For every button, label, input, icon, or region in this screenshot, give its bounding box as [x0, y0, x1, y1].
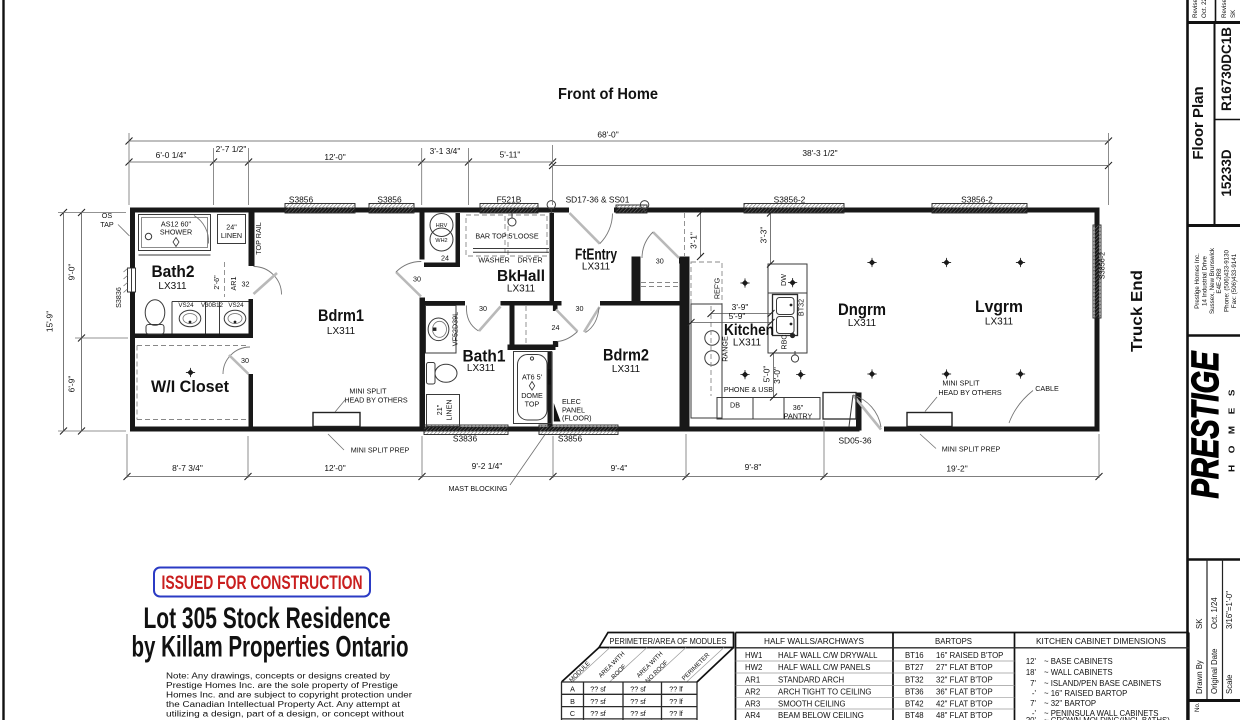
svg-text:DRYER: DRYER [517, 256, 542, 265]
svg-text:AT6 5': AT6 5' [522, 373, 543, 382]
svg-text:12': 12' [1026, 657, 1037, 666]
svg-text:AR2: AR2 [745, 688, 760, 697]
svg-text:32" FLAT B'TOP: 32" FLAT B'TOP [936, 675, 993, 684]
svg-text:LX311: LX311 [158, 281, 187, 292]
svg-text:HW1: HW1 [745, 651, 762, 660]
svg-text:RBC: RBC [780, 334, 789, 349]
svg-text:BT32: BT32 [797, 299, 806, 316]
svg-text:VS24: VS24 [178, 302, 194, 309]
svg-text:PHONE & USB: PHONE & USB [724, 385, 773, 394]
svg-text:3'-0": 3'-0" [772, 367, 782, 384]
svg-text:F521B: F521B [497, 195, 522, 205]
svg-text:Truck End: Truck End [1129, 270, 1146, 352]
svg-text:KITCHEN CABINET DIMENSIONS: KITCHEN CABINET DIMENSIONS [1036, 637, 1166, 646]
svg-text:(FLOOR): (FLOOR) [562, 414, 592, 423]
svg-text:Oct. 22: Oct. 22 [1201, 0, 1208, 18]
svg-text:BAR TOP 5'LOOSE: BAR TOP 5'LOOSE [475, 232, 538, 241]
svg-text:LX311: LX311 [612, 364, 641, 375]
svg-text:~ WALL CABINETS: ~ WALL CABINETS [1044, 668, 1113, 677]
svg-text:B: B [570, 697, 575, 706]
svg-text:~ BASE CABINETS: ~ BASE CABINETS [1044, 657, 1113, 666]
svg-text:15'-9": 15'-9" [45, 311, 55, 332]
svg-text:S3836: S3836 [453, 434, 478, 444]
svg-text:5'-0": 5'-0" [762, 366, 772, 383]
svg-text:9'-2 1/4": 9'-2 1/4" [472, 461, 503, 471]
svg-text:R16730DC1B: R16730DC1B [1219, 27, 1234, 111]
svg-text:Revised: Revised [1221, 0, 1228, 18]
svg-text:W/I Closet: W/I Closet [151, 377, 229, 396]
svg-text:30: 30 [413, 275, 421, 284]
svg-text:2'-7 1/2": 2'-7 1/2" [216, 144, 247, 154]
svg-text:68'-0": 68'-0" [597, 130, 618, 140]
svg-text:SD05-36: SD05-36 [838, 436, 871, 446]
svg-text:Oct. 1/24: Oct. 1/24 [1210, 597, 1219, 629]
svg-text:Prestige Homes Inc. are the so: Prestige Homes Inc. are the sole propert… [166, 681, 398, 690]
svg-text:MAST BLOCKING: MAST BLOCKING [449, 484, 508, 493]
svg-text:14 Industrial Drive: 14 Industrial Drive [1202, 256, 1209, 306]
svg-text:A: A [570, 685, 575, 694]
svg-text:36" FLAT B'TOP: 36" FLAT B'TOP [936, 688, 993, 697]
svg-text:9'-4": 9'-4" [611, 463, 628, 473]
svg-text:the Canadian Intellectual Prop: the Canadian Intellectual Property Act. … [166, 700, 401, 709]
svg-text:9'-0": 9'-0" [67, 264, 77, 281]
svg-text:Kitchen: Kitchen [724, 322, 774, 339]
svg-text:HRV: HRV [436, 223, 448, 229]
svg-text:~ 32" BARTOP: ~ 32" BARTOP [1044, 699, 1096, 708]
svg-text:?? lf: ?? lf [669, 697, 683, 706]
svg-text:HALF WALLS/ARCHWAYS: HALF WALLS/ARCHWAYS [764, 637, 864, 646]
svg-text:15233D: 15233D [1219, 149, 1234, 197]
svg-text:VS24: VS24 [228, 302, 244, 309]
svg-text:HALF WALL C/W DRYWALL: HALF WALL C/W DRYWALL [778, 651, 878, 660]
svg-text:Lvgrm: Lvgrm [975, 297, 1023, 316]
svg-text:RANGE: RANGE [721, 336, 730, 362]
svg-text:LX311: LX311 [985, 317, 1014, 328]
svg-text:DB: DB [730, 401, 740, 410]
svg-text:ARCH TIGHT TO CEILING: ARCH TIGHT TO CEILING [778, 688, 871, 697]
svg-text:TOP: TOP [525, 400, 540, 409]
svg-text:6'-0 1/4": 6'-0 1/4" [156, 150, 187, 160]
svg-text:18': 18' [1026, 668, 1037, 677]
svg-text:?? sf: ?? sf [630, 697, 646, 706]
svg-text:Front of Home: Front of Home [558, 86, 658, 103]
svg-text:LINEN: LINEN [445, 399, 454, 420]
svg-text:S3856: S3856 [377, 195, 402, 205]
svg-text:~ 16" RAISED BARTOP: ~ 16" RAISED BARTOP [1044, 689, 1127, 698]
svg-text:BT16: BT16 [905, 651, 924, 660]
svg-text:AR4: AR4 [745, 711, 761, 720]
svg-text:by Killam Properties Ontario: by Killam Properties Ontario [132, 631, 409, 664]
svg-text:3/16"=1'-0": 3/16"=1'-0" [1225, 591, 1234, 629]
svg-text:9'-8": 9'-8" [745, 462, 762, 472]
svg-text:Fax: (506)433-9141: Fax: (506)433-9141 [1231, 253, 1238, 308]
svg-text:SMOOTH CEILING: SMOOTH CEILING [778, 699, 846, 708]
svg-text:Phone: (506)433-9130: Phone: (506)433-9130 [1224, 249, 1231, 311]
svg-text:BT42: BT42 [905, 699, 924, 708]
svg-text:5'-9": 5'-9" [729, 311, 746, 321]
svg-text:BT36: BT36 [905, 688, 924, 697]
svg-text:WH2: WH2 [435, 238, 447, 244]
svg-text:BEAM BELOW CEILING: BEAM BELOW CEILING [778, 711, 864, 720]
svg-text:?? sf: ?? sf [630, 709, 646, 718]
svg-text:S3856-2: S3856-2 [774, 195, 806, 205]
svg-text:LX311: LX311 [582, 262, 611, 273]
svg-text:BARTOPS: BARTOPS [935, 637, 972, 646]
svg-text:S3856: S3856 [558, 434, 583, 444]
svg-text:SD17-36 & SS01: SD17-36 & SS01 [566, 195, 630, 205]
svg-text:Note: Any drawings, concepts: Note: Any drawings, concepts or designs … [166, 672, 390, 681]
svg-text:LX311: LX311 [848, 318, 877, 329]
svg-text:E4E-2R8: E4E-2R8 [1216, 268, 1223, 294]
svg-text:19'-2": 19'-2" [946, 464, 967, 474]
svg-text:Scale: Scale [1225, 674, 1234, 694]
svg-text:?? sf: ?? sf [590, 685, 606, 694]
svg-text:38'-3 1/2": 38'-3 1/2" [802, 148, 837, 158]
svg-text:30: 30 [576, 304, 584, 313]
svg-text:LINEN: LINEN [221, 231, 242, 240]
svg-text:utilizing a design, part of a: utilizing a design, part of a design, or… [166, 710, 405, 719]
svg-text:CABLE: CABLE [1035, 384, 1059, 393]
svg-text:Bdrm2: Bdrm2 [603, 346, 649, 365]
svg-text:REF'G: REF'G [713, 277, 722, 299]
svg-text:LX311: LX311 [327, 326, 356, 337]
svg-text:Bath2: Bath2 [152, 262, 195, 281]
svg-text:16" RAISED B'TOP: 16" RAISED B'TOP [936, 651, 1003, 660]
svg-text:20': 20' [1026, 716, 1037, 720]
svg-text:S3856-2: S3856-2 [1098, 252, 1107, 279]
svg-text:HW2: HW2 [745, 663, 762, 672]
svg-text:21": 21" [435, 404, 444, 415]
svg-text:30: 30 [656, 257, 664, 266]
svg-text:-': -' [1032, 689, 1037, 698]
svg-text:WASHER: WASHER [478, 256, 509, 265]
svg-text:V30B12: V30B12 [201, 302, 224, 309]
svg-text:MINI SPLIT PREP: MINI SPLIT PREP [942, 445, 1001, 454]
svg-text:C: C [570, 709, 575, 718]
svg-text:24: 24 [552, 323, 560, 332]
svg-text:Original Date: Original Date [1210, 648, 1219, 694]
svg-text:SK: SK [1195, 618, 1204, 629]
svg-text:SK: SK [1230, 9, 1237, 18]
svg-text:Sussex, New Brunswick: Sussex, New Brunswick [1209, 247, 1216, 314]
svg-text:~ CROWN MOLDING(INCL BATHS): ~ CROWN MOLDING(INCL BATHS) [1044, 716, 1170, 720]
svg-text:30: 30 [241, 356, 249, 365]
svg-text:?? lf: ?? lf [669, 709, 683, 718]
svg-text:27" FLAT B'TOP: 27" FLAT B'TOP [936, 663, 993, 672]
svg-text:Floor Plan: Floor Plan [1190, 86, 1207, 159]
svg-text:ISSUED FOR CONSTRUCTION: ISSUED FOR CONSTRUCTION [162, 572, 363, 594]
svg-text:TAP: TAP [100, 220, 114, 229]
svg-text:2'-6": 2'-6" [212, 275, 221, 290]
svg-text:?? sf: ?? sf [590, 697, 606, 706]
svg-text:48" FLAT B'TOP: 48" FLAT B'TOP [936, 711, 993, 720]
svg-text:MINI SPLIT: MINI SPLIT [349, 387, 387, 396]
svg-text:HOMES: HOMES [1227, 378, 1237, 472]
svg-text:VF52D39L: VF52D39L [451, 312, 460, 346]
svg-text:BT27: BT27 [905, 663, 924, 672]
svg-text:HALF WALL C/W PANELS: HALF WALL C/W PANELS [778, 663, 870, 672]
svg-text:Revised: Revised [1192, 0, 1199, 18]
svg-text:?? sf: ?? sf [630, 685, 646, 694]
svg-text:BT32: BT32 [905, 675, 924, 684]
svg-text:MINI SPLIT PREP: MINI SPLIT PREP [351, 446, 410, 455]
svg-text:3'-1 3/4": 3'-1 3/4" [430, 146, 461, 156]
svg-text:32: 32 [242, 280, 250, 289]
svg-text:S3856-2: S3856-2 [961, 195, 993, 205]
svg-text:BkHall: BkHall [497, 268, 545, 285]
svg-text:TOP RAIL: TOP RAIL [254, 222, 263, 255]
svg-text:PANTRY: PANTRY [784, 412, 813, 421]
svg-text:AR1: AR1 [745, 675, 760, 684]
svg-text:Bdrm1: Bdrm1 [318, 306, 364, 325]
svg-text:BT48: BT48 [905, 711, 924, 720]
svg-text:?? sf: ?? sf [590, 709, 606, 718]
svg-text:AR3: AR3 [745, 699, 760, 708]
svg-text:~ ISLAND/PEN BASE CABINETS: ~ ISLAND/PEN BASE CABINETS [1044, 679, 1161, 688]
svg-text:7': 7' [1030, 699, 1036, 708]
svg-text:3'-3": 3'-3" [759, 227, 769, 244]
svg-text:SHOWER: SHOWER [160, 228, 192, 237]
svg-text:HEAD BY OTHERS: HEAD BY OTHERS [344, 396, 408, 405]
svg-text:HEAD BY OTHERS: HEAD BY OTHERS [938, 388, 1002, 397]
svg-text:30: 30 [479, 304, 487, 313]
svg-text:12'-0": 12'-0" [324, 152, 345, 162]
svg-text:PERIMETER/AREA OF MODULES: PERIMETER/AREA OF MODULES [610, 637, 727, 646]
svg-text:?? lf: ?? lf [669, 685, 683, 694]
svg-text:PRESTIGE: PRESTIGE [1185, 350, 1227, 498]
svg-text:S3836: S3836 [114, 287, 123, 308]
svg-text:24: 24 [441, 254, 449, 263]
svg-text:8'-7 3/4": 8'-7 3/4" [172, 463, 203, 473]
svg-text:42" FLAT B'TOP: 42" FLAT B'TOP [936, 699, 993, 708]
svg-text:Drawn By: Drawn By [1195, 660, 1204, 694]
svg-text:5'-11": 5'-11" [500, 150, 521, 160]
svg-text:AR1: AR1 [229, 277, 238, 291]
svg-text:7': 7' [1030, 679, 1036, 688]
svg-text:12'-0": 12'-0" [324, 463, 345, 473]
svg-text:Homes Inc. and are subject to: Homes Inc. and are subject to copyright … [166, 691, 412, 700]
svg-text:LX311: LX311 [507, 284, 536, 295]
svg-text:DW: DW [779, 274, 788, 286]
svg-text:MINI SPLIT: MINI SPLIT [942, 379, 980, 388]
svg-text:3'-1": 3'-1" [689, 232, 699, 249]
svg-text:LX311: LX311 [733, 338, 762, 349]
svg-text:S3856: S3856 [289, 195, 314, 205]
svg-text:Prestige Homes Inc.: Prestige Homes Inc. [1194, 253, 1201, 309]
svg-text:STANDARD ARCH: STANDARD ARCH [778, 675, 844, 684]
svg-text:Dngrm: Dngrm [838, 300, 886, 319]
svg-text:LX311: LX311 [467, 363, 496, 374]
svg-text:6'-9": 6'-9" [67, 376, 77, 393]
svg-text:No.: No. [1194, 702, 1201, 712]
